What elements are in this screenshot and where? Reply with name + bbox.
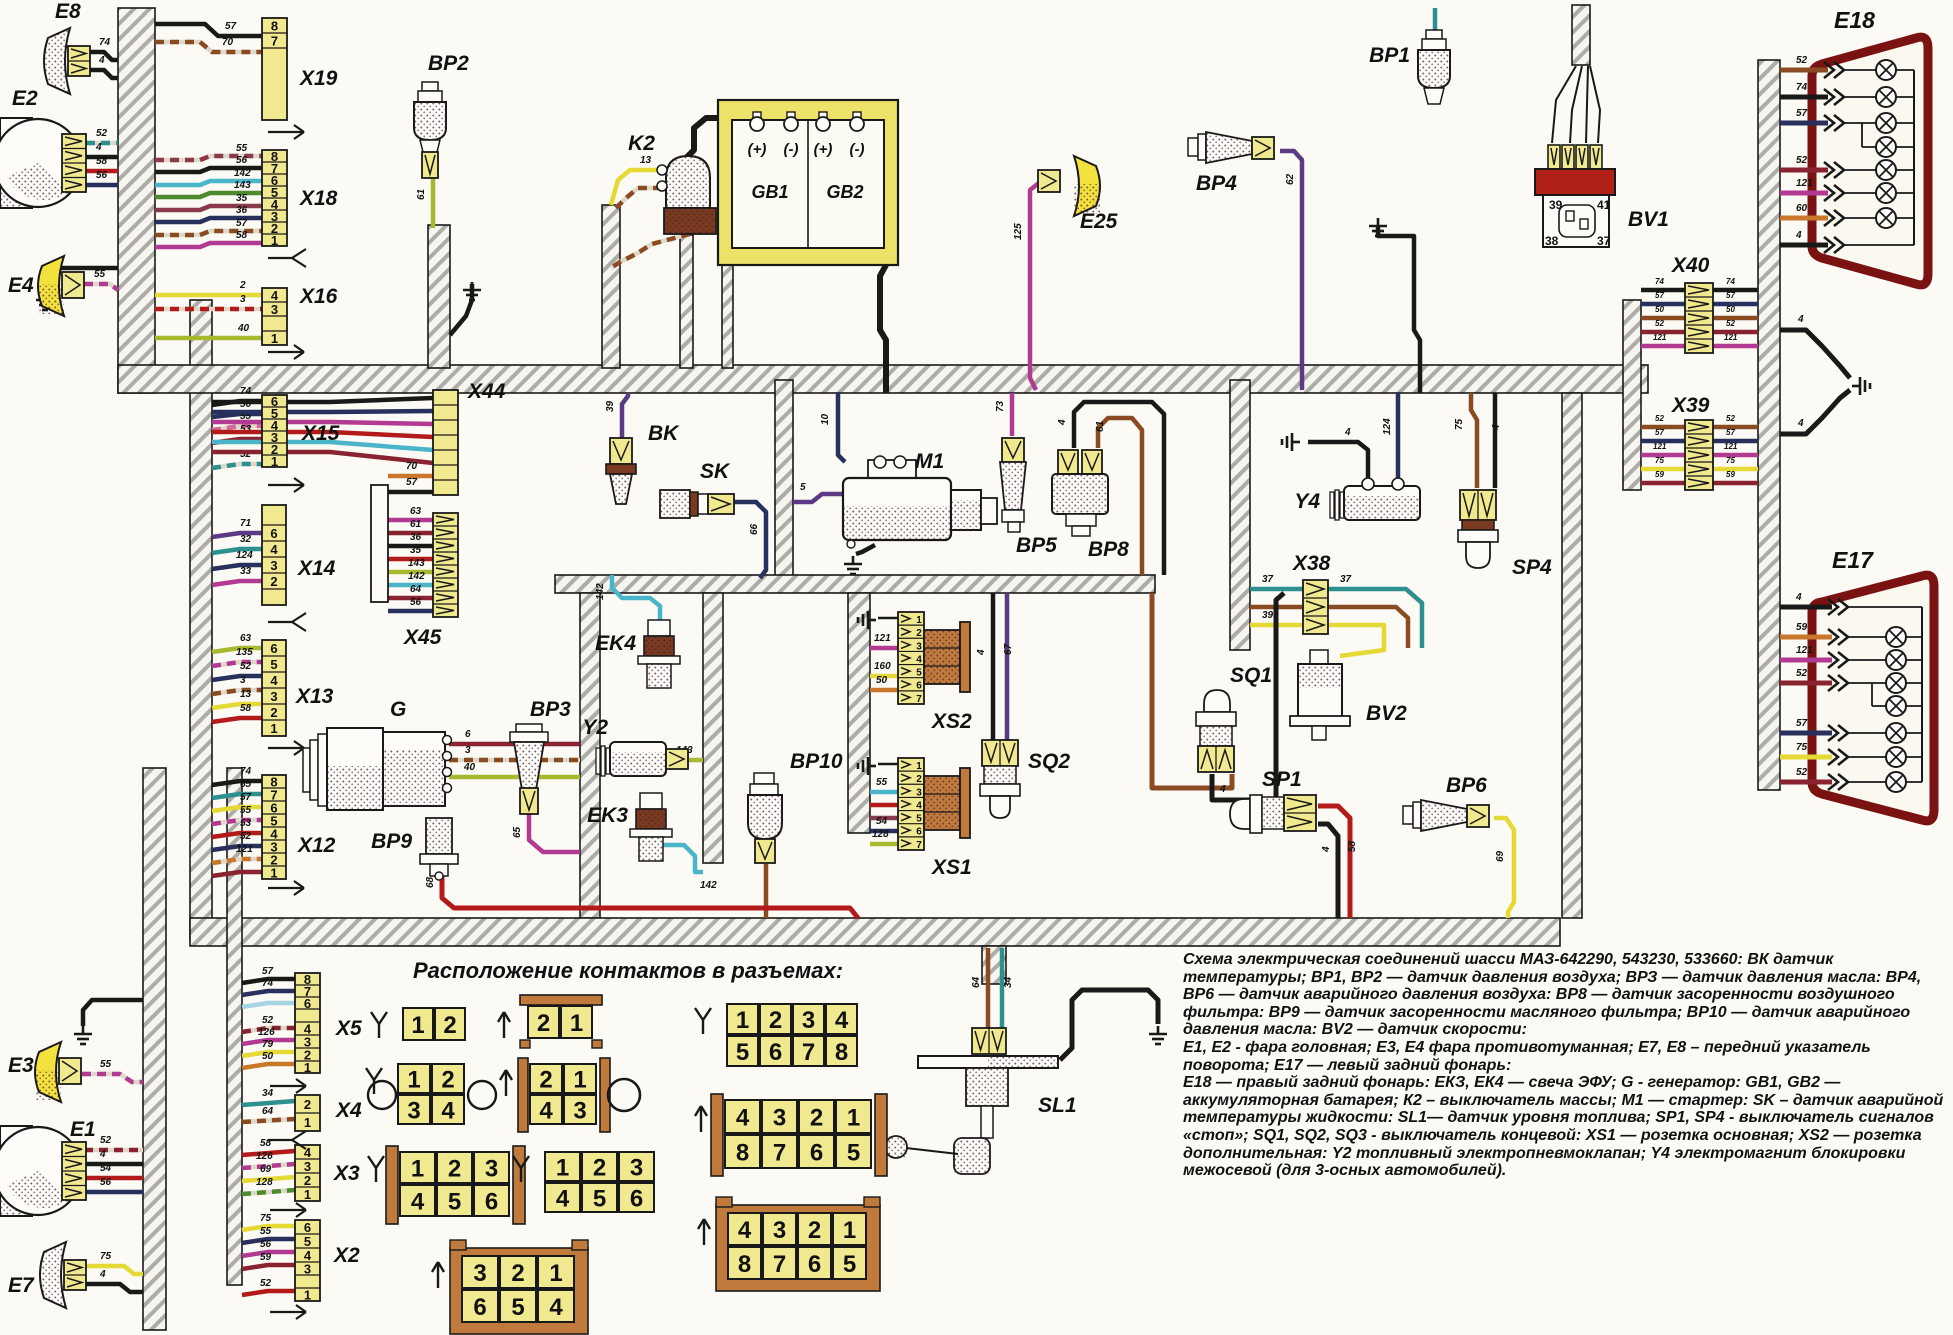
svg-text:63: 63 — [410, 506, 422, 517]
fork-icon — [368, 1156, 384, 1182]
device-SQ1: SQ1 — [1196, 664, 1272, 772]
svg-text:126: 126 — [256, 1151, 273, 1162]
svg-text:121: 121 — [1796, 178, 1813, 189]
arrow-mark-icon — [270, 1079, 306, 1093]
svg-text:70: 70 — [222, 37, 234, 48]
device-BP1: BP1 — [1369, 30, 1450, 104]
svg-text:5: 5 — [843, 1251, 856, 1278]
svg-text:125: 125 — [1013, 223, 1024, 240]
svg-text:SL1: SL1 — [1038, 1094, 1077, 1117]
svg-text:121: 121 — [1796, 645, 1813, 656]
svg-text:4: 4 — [556, 1186, 570, 1213]
contacts-title: Расположение контактов в разъемах: — [413, 958, 843, 984]
svg-text:(-): (-) — [784, 141, 799, 158]
svg-text:4: 4 — [738, 1217, 752, 1244]
svg-text:54: 54 — [876, 816, 888, 827]
svg-text:E1: E1 — [70, 1118, 96, 1141]
svg-text:52: 52 — [240, 661, 252, 672]
svg-text:74: 74 — [99, 37, 111, 48]
svg-text:6: 6 — [916, 681, 922, 692]
svg-text:10: 10 — [820, 413, 831, 425]
arrow-mark-icon — [268, 741, 304, 755]
bulb-icon — [1876, 208, 1896, 228]
svg-text:2: 2 — [443, 1012, 456, 1039]
svg-text:4: 4 — [835, 1007, 849, 1034]
svg-text:61: 61 — [410, 519, 422, 530]
svg-text:2: 2 — [270, 705, 277, 720]
device-E1: E1 — [0, 1118, 96, 1216]
svg-text:BP8: BP8 — [1088, 538, 1129, 561]
svg-text:2: 2 — [511, 1260, 524, 1287]
svg-text:E25: E25 — [1080, 210, 1118, 233]
legend-text: Схема электрическая соединений шасси МАЗ… — [1183, 951, 1953, 1180]
svg-text:35: 35 — [410, 545, 422, 556]
svg-text:4: 4 — [1797, 418, 1804, 429]
svg-text:SK: SK — [700, 460, 731, 483]
bulb-icon — [1886, 650, 1906, 670]
device-XS2: 1234567XS2 — [898, 612, 972, 733]
svg-text:2: 2 — [916, 628, 922, 639]
svg-text:3: 3 — [802, 1007, 815, 1034]
svg-text:X13: X13 — [295, 685, 334, 708]
connector-X2: 65431X2 — [295, 1220, 360, 1303]
legend-line: температуры; ВР1, ВР2 — датчик давления … — [1183, 969, 1953, 987]
svg-text:5: 5 — [593, 1186, 606, 1213]
rear-lamp-E18: 52745752121604E18 — [1780, 7, 1928, 285]
legend-line: аккумуляторная батарея; К2 – выключатель… — [1183, 1092, 1953, 1110]
svg-text:6: 6 — [916, 827, 922, 838]
svg-text:8: 8 — [271, 19, 278, 34]
svg-text:57: 57 — [225, 21, 237, 32]
svg-text:6: 6 — [304, 1220, 311, 1235]
svg-text:E3: E3 — [8, 1054, 34, 1077]
svg-text:1: 1 — [304, 1187, 311, 1202]
svg-text:SP4: SP4 — [1512, 556, 1552, 579]
svg-text:121: 121 — [1724, 333, 1738, 342]
svg-text:1: 1 — [847, 1105, 860, 1132]
svg-text:6: 6 — [808, 1251, 821, 1278]
svg-text:35: 35 — [236, 193, 248, 204]
svg-text:70: 70 — [406, 461, 418, 472]
svg-text:59: 59 — [1655, 470, 1664, 479]
device-XS1: 1234567XS1 — [898, 758, 972, 879]
legend-line: давления масла: BV2 — датчик скорости: — [1183, 1021, 1953, 1039]
connector-X44: X44 — [433, 380, 506, 495]
svg-text:7: 7 — [802, 1039, 815, 1066]
svg-text:3: 3 — [304, 1262, 311, 1277]
svg-text:2: 2 — [593, 1155, 606, 1182]
svg-text:X16: X16 — [299, 285, 338, 308]
svg-text:55: 55 — [236, 143, 248, 154]
legend-line: температуры жидкости: SL1— датчик уровня… — [1183, 1109, 1953, 1127]
svg-text:58: 58 — [236, 230, 248, 241]
svg-text:X2: X2 — [333, 1244, 360, 1267]
pin-layouts: 1221123421431234561234563216541234567843… — [366, 995, 887, 1334]
svg-text:52: 52 — [1655, 319, 1664, 328]
svg-text:BP1: BP1 — [1369, 44, 1410, 67]
svg-text:74: 74 — [240, 386, 252, 397]
legend-line: дополнительная: Y2 топливный электропнев… — [1183, 1145, 1953, 1163]
svg-text:57: 57 — [236, 218, 248, 229]
svg-text:5: 5 — [916, 814, 922, 825]
svg-text:6: 6 — [630, 1186, 643, 1213]
fork-icon — [371, 1012, 387, 1038]
svg-text:5: 5 — [511, 1294, 524, 1321]
svg-text:1: 1 — [271, 331, 278, 346]
svg-text:4: 4 — [1344, 427, 1351, 438]
svg-text:74: 74 — [240, 766, 252, 777]
svg-text:142: 142 — [700, 880, 717, 891]
legend-line: Схема электрическая соединений шасси МАЗ… — [1183, 951, 1953, 969]
connector-plain — [371, 485, 388, 602]
svg-text:5: 5 — [800, 482, 806, 493]
svg-text:50: 50 — [1726, 305, 1735, 314]
svg-text:BP3: BP3 — [530, 698, 571, 721]
svg-text:6: 6 — [270, 641, 277, 656]
svg-text:(+): (+) — [748, 141, 767, 158]
svg-text:X14: X14 — [297, 557, 336, 580]
svg-text:4: 4 — [1797, 314, 1804, 325]
svg-text:4: 4 — [95, 142, 102, 153]
svg-text:128: 128 — [872, 829, 889, 840]
svg-text:75: 75 — [1655, 456, 1664, 465]
svg-text:4: 4 — [1795, 592, 1802, 603]
svg-text:4: 4 — [916, 800, 922, 811]
svg-text:2: 2 — [304, 1173, 311, 1188]
svg-text:39: 39 — [1549, 198, 1563, 212]
svg-text:6: 6 — [270, 526, 277, 541]
svg-text:58: 58 — [240, 703, 252, 714]
svg-text:1: 1 — [549, 1260, 562, 1287]
svg-text:1: 1 — [736, 1007, 749, 1034]
svg-text:4: 4 — [736, 1105, 750, 1132]
svg-text:73: 73 — [995, 400, 1006, 412]
device-E25: E25 — [1038, 156, 1118, 233]
arrow-mark-icon — [270, 1305, 306, 1319]
svg-text:1: 1 — [304, 1288, 311, 1303]
svg-text:56: 56 — [100, 1177, 112, 1188]
svg-text:61: 61 — [1095, 420, 1106, 432]
svg-text:M1: M1 — [915, 450, 944, 473]
svg-text:4: 4 — [549, 1294, 563, 1321]
svg-text:3: 3 — [916, 641, 922, 652]
svg-text:SQ1: SQ1 — [1230, 664, 1272, 687]
svg-text:4: 4 — [539, 1098, 553, 1125]
svg-text:BK: BK — [648, 422, 680, 445]
svg-text:71: 71 — [240, 518, 252, 529]
svg-text:160: 160 — [874, 661, 891, 672]
svg-text:52: 52 — [100, 1135, 112, 1146]
svg-text:74: 74 — [1796, 82, 1808, 93]
svg-text:61: 61 — [416, 188, 427, 200]
connector-X5: 8764321X5 — [295, 972, 362, 1075]
svg-text:63: 63 — [240, 633, 252, 644]
svg-text:52: 52 — [262, 1015, 274, 1026]
svg-text:121: 121 — [236, 844, 253, 855]
svg-text:52: 52 — [1655, 414, 1664, 423]
arrow-up-icon — [500, 1070, 512, 1096]
svg-text:3: 3 — [270, 689, 277, 704]
svg-text:BV2: BV2 — [1366, 702, 1407, 725]
svg-text:4: 4 — [441, 1098, 455, 1125]
svg-text:5: 5 — [847, 1140, 860, 1167]
svg-text:143: 143 — [234, 180, 251, 191]
arrow-mark-icon — [268, 478, 304, 492]
device-BP5: BP5 — [1000, 438, 1057, 557]
svg-text:7: 7 — [916, 694, 922, 705]
bulb-icon — [1886, 627, 1906, 647]
svg-text:8: 8 — [736, 1140, 749, 1167]
arrow-up-icon — [498, 1012, 510, 1038]
svg-text:142: 142 — [595, 583, 606, 600]
svg-text:5: 5 — [916, 668, 922, 679]
bulb-icon — [1886, 673, 1906, 693]
svg-text:39: 39 — [1262, 610, 1274, 621]
svg-text:E2: E2 — [12, 87, 38, 110]
svg-text:121: 121 — [1724, 442, 1738, 451]
connector-X19: 87X19 — [262, 18, 338, 120]
svg-text:55: 55 — [260, 1226, 272, 1237]
device-BP2: BP2 — [414, 52, 469, 178]
pin-layout: 2143 — [500, 1058, 640, 1132]
connector-X4: 21X4 — [295, 1095, 362, 1131]
svg-text:4: 4 — [99, 1269, 106, 1280]
connector-X3: 4321X3 — [295, 1145, 360, 1202]
svg-text:59: 59 — [1726, 470, 1735, 479]
svg-text:57: 57 — [1726, 291, 1735, 300]
svg-text:34: 34 — [262, 1088, 274, 1099]
device-E8: E8 — [44, 0, 90, 94]
device-SK: SK — [660, 460, 734, 518]
svg-text:6: 6 — [465, 729, 471, 740]
svg-text:5: 5 — [270, 657, 277, 672]
svg-text:4: 4 — [1795, 230, 1802, 241]
device-EK4: EK4 — [595, 620, 680, 688]
svg-text:1: 1 — [411, 1156, 424, 1183]
svg-text:75: 75 — [1726, 456, 1735, 465]
svg-text:4: 4 — [1219, 784, 1226, 795]
svg-text:1: 1 — [271, 454, 278, 469]
svg-text:39: 39 — [605, 400, 616, 412]
svg-text:6: 6 — [485, 1189, 498, 1216]
svg-text:56: 56 — [410, 597, 422, 608]
svg-text:52: 52 — [1726, 319, 1735, 328]
svg-text:Y2: Y2 — [582, 716, 608, 739]
legend-line: поворота; Е17 — левый задний фонарь: — [1183, 1057, 1953, 1075]
arrow-mark-icon — [268, 881, 304, 895]
svg-text:74: 74 — [1726, 277, 1735, 286]
svg-text:XS1: XS1 — [931, 856, 972, 879]
arrow-mark-icon — [268, 125, 304, 139]
pin-layout: 43218765 — [695, 1094, 887, 1176]
svg-text:52: 52 — [1796, 55, 1808, 66]
svg-text:52: 52 — [1796, 767, 1808, 778]
legend-line: «стоп»; SQ1, SQ2, SQ3 - выключатель конц… — [1183, 1127, 1953, 1145]
pin-layout: 12 — [371, 1008, 465, 1040]
svg-text:1: 1 — [411, 1012, 424, 1039]
svg-text:4: 4 — [270, 542, 278, 557]
legend-line: ВР6 — датчик аварийного давления воздуха… — [1183, 986, 1953, 1004]
svg-text:1: 1 — [271, 233, 278, 248]
svg-text:65: 65 — [240, 779, 252, 790]
ground-icon — [1282, 433, 1300, 451]
svg-text:3: 3 — [240, 294, 246, 305]
svg-text:1: 1 — [270, 721, 277, 736]
svg-text:56: 56 — [236, 155, 248, 166]
svg-text:BP6: BP6 — [1446, 774, 1487, 797]
pin-layout: 1234 — [366, 1064, 496, 1125]
bulb-icon — [1876, 113, 1896, 133]
svg-text:124: 124 — [1382, 418, 1393, 435]
svg-text:5: 5 — [304, 1234, 311, 1249]
device-Y4: Y4 — [1294, 478, 1420, 520]
svg-text:36: 36 — [236, 205, 248, 216]
device-M1: M1 — [843, 450, 997, 548]
device-BP3: BP3 — [510, 698, 571, 814]
svg-text:128: 128 — [256, 1177, 273, 1188]
svg-text:E7: E7 — [8, 1274, 35, 1297]
svg-text:7: 7 — [271, 34, 278, 49]
svg-text:13: 13 — [640, 155, 652, 166]
bulb-icon — [1876, 137, 1896, 157]
svg-text:64: 64 — [971, 976, 982, 988]
svg-text:59: 59 — [1796, 622, 1808, 633]
arrow-up-icon — [695, 1106, 707, 1132]
svg-text:X4: X4 — [335, 1099, 362, 1122]
svg-text:EK4: EK4 — [595, 632, 636, 655]
svg-text:50: 50 — [262, 1051, 274, 1062]
bulb-icon — [1886, 772, 1906, 792]
svg-text:64: 64 — [262, 1106, 274, 1117]
pin-layout: 21 — [498, 995, 602, 1048]
svg-text:SQ2: SQ2 — [1028, 750, 1070, 773]
svg-text:3: 3 — [916, 787, 922, 798]
device-BP4: BP4 — [1188, 132, 1274, 195]
svg-text:X3: X3 — [333, 1162, 360, 1185]
device-BV2: BV2 — [1290, 650, 1407, 740]
svg-text:57: 57 — [1655, 291, 1664, 300]
svg-text:124: 124 — [236, 550, 253, 561]
arrow-mark-icon — [270, 1203, 306, 1217]
svg-text:57: 57 — [240, 792, 252, 803]
svg-text:4: 4 — [1321, 846, 1332, 853]
ground-icon — [1852, 377, 1870, 395]
svg-text:68: 68 — [425, 876, 436, 888]
legend-line: Е1, Е2 - фара головная; Е3, Е4 фара прот… — [1183, 1039, 1953, 1057]
device-SL1: SL1 — [885, 1028, 1077, 1174]
device-BP10: BP10 — [748, 750, 843, 863]
svg-text:142: 142 — [234, 168, 251, 179]
svg-text:(-): (-) — [850, 141, 865, 158]
svg-text:69: 69 — [260, 1164, 272, 1175]
svg-text:75: 75 — [1454, 418, 1465, 430]
svg-text:(+): (+) — [814, 141, 833, 158]
svg-text:3: 3 — [407, 1098, 420, 1125]
svg-text:X12: X12 — [297, 834, 336, 857]
svg-text:XS2: XS2 — [931, 710, 972, 733]
connector-X16: 431X16 — [262, 285, 338, 346]
svg-text:1: 1 — [304, 1060, 311, 1075]
svg-text:2: 2 — [769, 1007, 782, 1034]
arrow-up-icon — [432, 1262, 444, 1288]
svg-text:3: 3 — [485, 1156, 498, 1183]
svg-text:58: 58 — [1347, 840, 1358, 852]
svg-text:2: 2 — [304, 1097, 311, 1112]
svg-text:41: 41 — [1597, 198, 1611, 212]
device-BV1: 39413837BV1 — [1535, 145, 1669, 248]
svg-text:57: 57 — [406, 477, 418, 488]
svg-text:3: 3 — [465, 745, 471, 756]
svg-text:121: 121 — [874, 633, 891, 644]
svg-text:52: 52 — [1726, 414, 1735, 423]
svg-text:57: 57 — [1796, 108, 1808, 119]
svg-text:BP9: BP9 — [371, 830, 412, 853]
svg-text:8: 8 — [835, 1039, 848, 1066]
pin-layout: 123456 — [513, 1152, 654, 1213]
svg-text:3: 3 — [773, 1105, 786, 1132]
svg-text:2: 2 — [537, 1010, 550, 1037]
svg-text:53: 53 — [240, 818, 252, 829]
svg-text:59: 59 — [260, 1252, 272, 1263]
bulb-icon — [1876, 160, 1896, 180]
svg-text:BP5: BP5 — [1016, 534, 1057, 557]
svg-text:3: 3 — [270, 558, 277, 573]
svg-text:4: 4 — [976, 649, 987, 656]
svg-text:57: 57 — [1655, 428, 1664, 437]
device-GB1: (+)(-)(+)(-)GB1GB2 — [718, 100, 898, 265]
device-SP1: SP1 — [1230, 768, 1316, 833]
svg-text:G: G — [390, 698, 406, 721]
bulb-icon — [1876, 60, 1896, 80]
svg-text:33: 33 — [240, 566, 252, 577]
svg-text:GB2: GB2 — [826, 182, 863, 202]
bulb-icon — [1876, 183, 1896, 203]
svg-text:EK3: EK3 — [587, 804, 628, 827]
svg-text:7: 7 — [916, 840, 922, 851]
device-E2: E2 — [0, 87, 86, 208]
device-BP8: BP8 — [1052, 450, 1129, 561]
svg-text:65: 65 — [512, 826, 523, 838]
bracket-mark-icon — [268, 613, 306, 631]
arrow-mark-icon — [268, 345, 304, 359]
svg-text:6: 6 — [769, 1039, 782, 1066]
svg-text:32: 32 — [240, 534, 252, 545]
svg-text:34: 34 — [1003, 976, 1014, 988]
svg-text:62: 62 — [1285, 173, 1296, 185]
svg-text:55: 55 — [240, 805, 252, 816]
svg-text:8: 8 — [738, 1251, 751, 1278]
svg-text:7: 7 — [773, 1251, 786, 1278]
legend-line: Е18 — правый задний фонарь: ЕКЗ, ЕК4 — с… — [1183, 1074, 1953, 1092]
svg-text:121: 121 — [1653, 333, 1667, 342]
svg-text:K2: K2 — [628, 132, 655, 155]
svg-text:7: 7 — [773, 1140, 786, 1167]
svg-text:54: 54 — [100, 1163, 112, 1174]
svg-text:2: 2 — [239, 280, 246, 291]
svg-text:75: 75 — [100, 1251, 112, 1262]
svg-text:38: 38 — [1545, 234, 1559, 248]
svg-text:75: 75 — [260, 1213, 272, 1224]
device-BP9: BP9 — [371, 818, 458, 880]
svg-text:4: 4 — [916, 654, 922, 665]
svg-text:37: 37 — [1262, 574, 1274, 585]
svg-text:3: 3 — [773, 1217, 786, 1244]
svg-text:121: 121 — [1653, 442, 1667, 451]
ground-icon — [74, 1026, 92, 1044]
svg-text:E18: E18 — [1834, 7, 1875, 33]
ground-icon — [844, 556, 862, 574]
svg-text:60: 60 — [1796, 203, 1808, 214]
